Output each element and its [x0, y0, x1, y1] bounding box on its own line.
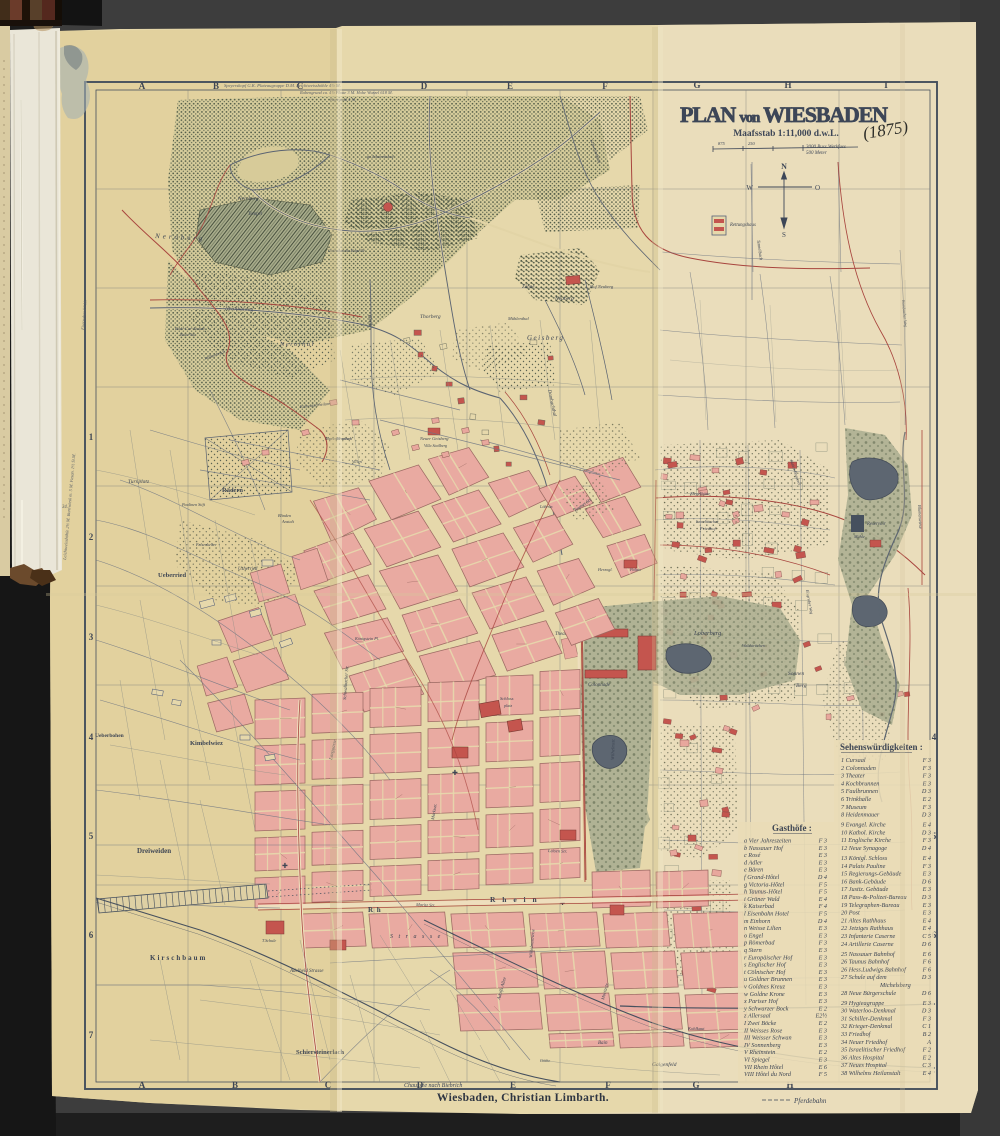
- svg-text:Friedhof: Friedhof: [699, 526, 716, 531]
- svg-text:34 Neuer Friedhof: 34 Neuer Friedhof: [840, 1039, 888, 1046]
- svg-text:F: F: [602, 81, 608, 91]
- svg-text:F 3: F 3: [922, 863, 931, 870]
- svg-text:Rädern: Rädern: [222, 487, 243, 494]
- svg-text:r Europäischer Hof: r Europäischer Hof: [744, 954, 794, 961]
- svg-text:Tempel: Tempel: [248, 212, 263, 217]
- svg-text:19 Telegraphen-Bureau: 19 Telegraphen-Bureau: [841, 902, 900, 909]
- svg-text:14 Palais Pauline: 14 Palais Pauline: [841, 863, 886, 870]
- svg-text:Geisberg: Geisberg: [527, 334, 564, 342]
- svg-text:E 3: E 3: [818, 984, 827, 991]
- svg-text:24 Artillerie Caserne: 24 Artillerie Caserne: [841, 941, 894, 948]
- svg-text:17 Justiz. Gebäude: 17 Justiz. Gebäude: [841, 886, 889, 893]
- svg-text:Michelsberg: Michelsberg: [879, 982, 911, 989]
- svg-text:E 2: E 2: [818, 1005, 827, 1012]
- svg-text:F 5: F 5: [818, 911, 827, 918]
- svg-text:28 Neue Bürgerschule: 28 Neue Bürgerschule: [841, 990, 896, 997]
- svg-text:6 Trinkhalle: 6 Trinkhalle: [841, 796, 871, 803]
- svg-text:VI Spiegel: VI Spiegel: [744, 1057, 770, 1064]
- svg-text:Kimbelwiez: Kimbelwiez: [190, 740, 223, 747]
- svg-text:h Taunus-Hôtel: h Taunus-Hôtel: [744, 889, 782, 896]
- svg-text:E: E: [510, 1080, 516, 1090]
- svg-text:Villa Stailberg: Villa Stailberg: [424, 443, 447, 448]
- svg-text:F 3: F 3: [922, 804, 931, 811]
- svg-text:E 2: E 2: [922, 796, 931, 803]
- svg-text:F 5: F 5: [818, 1071, 827, 1078]
- svg-text:R h: R h: [368, 906, 382, 914]
- svg-text:36 Altes Hospital: 36 Altes Hospital: [840, 1054, 884, 1061]
- svg-text:E 3: E 3: [818, 1042, 827, 1049]
- svg-text:B: B: [213, 81, 219, 91]
- svg-text:VII Rhein Hôtel: VII Rhein Hôtel: [744, 1064, 783, 1071]
- svg-text:6: 6: [89, 930, 94, 940]
- svg-text:l Eisenbahn Hotel: l Eisenbahn Hotel: [744, 911, 789, 918]
- svg-text:Neroberg: Neroberg: [237, 196, 259, 202]
- svg-text:Ueberried: Ueberried: [158, 572, 187, 579]
- svg-text:Beau-Site: Beau-Site: [180, 332, 196, 337]
- svg-text:5: 5: [89, 831, 94, 841]
- svg-text:d Adler: d Adler: [744, 859, 763, 866]
- svg-text:37 Neues Hospital: 37 Neues Hospital: [840, 1062, 887, 1069]
- svg-text:8 Heidenmauer: 8 Heidenmauer: [841, 812, 880, 819]
- svg-text:3 Theater: 3 Theater: [840, 773, 865, 780]
- svg-text:G: G: [693, 80, 700, 90]
- svg-text:7: 7: [89, 1030, 94, 1040]
- svg-text:18 Pass-&-Polizei-Bureau: 18 Pass-&-Polizei-Bureau: [841, 894, 907, 901]
- svg-text:Moritz Str.: Moritz Str.: [415, 902, 435, 908]
- svg-text:Bade-Cur-Anstalt: Bade-Cur-Anstalt: [175, 326, 206, 331]
- svg-text:Maafsstab 1:11,000 d.w.L.: Maafsstab 1:11,000 d.w.L.: [733, 129, 839, 139]
- svg-text:10 Kathol. Kirche: 10 Kathol. Kirche: [841, 829, 886, 836]
- svg-text:B 2: B 2: [923, 1031, 931, 1038]
- svg-text:VIII Hôtel du Nord: VIII Hôtel du Nord: [744, 1071, 792, 1078]
- svg-text:4 Kochbrunnen: 4 Kochbrunnen: [841, 780, 879, 787]
- svg-text:F 3: F 3: [922, 757, 931, 764]
- svg-text:Mühlenthal: Mühlenthal: [507, 316, 529, 321]
- svg-text:875: 875: [718, 141, 726, 146]
- svg-text:k Kaiserbad: k Kaiserbad: [744, 903, 775, 910]
- svg-text:p Römerbad: p Römerbad: [743, 940, 775, 947]
- svg-text:E 3: E 3: [818, 1057, 827, 1064]
- svg-text:D: D: [421, 81, 428, 91]
- svg-text:q Stern: q Stern: [744, 947, 762, 954]
- svg-text:E 4: E 4: [922, 855, 931, 862]
- svg-text:Paulinen Stift: Paulinen Stift: [181, 502, 206, 507]
- svg-text:C 5: C 5: [922, 933, 931, 940]
- svg-text:27 Schule auf dem: 27 Schule auf dem: [841, 974, 887, 981]
- svg-text:Anstalt: Anstalt: [281, 519, 295, 524]
- svg-text:H: H: [784, 80, 791, 90]
- svg-text:16 Bank-Gebäude: 16 Bank-Gebäude: [841, 878, 886, 885]
- svg-text:b Nassauer Hof: b Nassauer Hof: [744, 845, 784, 852]
- svg-text:Wiesbaden, Christian Limbarth.: Wiesbaden, Christian Limbarth.: [437, 1092, 609, 1104]
- svg-text:E 4: E 4: [922, 1070, 931, 1077]
- svg-text:Sehenswürdigkeiten :: Sehenswürdigkeiten :: [840, 742, 923, 752]
- svg-text:E 2: E 2: [818, 1049, 827, 1056]
- svg-text:I: I: [884, 80, 888, 90]
- svg-text:Gasthöfe :: Gasthöfe :: [772, 823, 812, 833]
- svg-text:W: W: [746, 184, 753, 192]
- svg-text:E2½: E2½: [814, 1013, 827, 1020]
- svg-text:PLAN von WIESBADEN: PLAN von WIESBADEN: [680, 102, 890, 127]
- svg-text:B: B: [232, 1080, 238, 1090]
- svg-text:Ziegelhütte: Ziegelhütte: [690, 491, 710, 496]
- svg-text:I Zwei Böcke: I Zwei Böcke: [743, 1020, 777, 1027]
- svg-text:s Englischer Hof: s Englischer Hof: [744, 962, 787, 969]
- svg-text:3000 Russ.Werkfuss: 3000 Russ.Werkfuss: [806, 145, 846, 150]
- svg-text:Rabengrund ca. 4½ Platte 3 M.: Rabengrund ca. 4½ Platte 3 M. Hohe Wurze…: [299, 90, 393, 95]
- svg-text:Speyerskopf G.K. Plateaugruppe: Speyerskopf G.K. Plateaugruppe D.M. Leic…: [224, 83, 341, 88]
- svg-text:E 3: E 3: [818, 845, 827, 852]
- svg-text:Königstein Pl.: Königstein Pl.: [354, 636, 379, 641]
- svg-text:Neuer Geisberg: Neuer Geisberg: [419, 436, 449, 441]
- svg-text:E 3: E 3: [922, 871, 931, 878]
- svg-text:E 3: E 3: [922, 780, 931, 787]
- svg-text:F 5: F 5: [818, 889, 827, 896]
- svg-text:IV Sonnenberg: IV Sonnenberg: [743, 1042, 781, 1049]
- svg-text:n Weisse Lilien: n Weisse Lilien: [744, 925, 781, 932]
- svg-text:Nerothal: Nerothal: [279, 341, 315, 348]
- svg-text:A: A: [139, 81, 146, 91]
- svg-text:D 4: D 4: [817, 874, 827, 881]
- svg-text:u Goldner Brunnen: u Goldner Brunnen: [744, 976, 792, 983]
- svg-text:E 3: E 3: [922, 910, 931, 917]
- svg-text:Kirschbaum: Kirschbaum: [150, 954, 207, 962]
- svg-text:E 3: E 3: [818, 1035, 827, 1042]
- svg-text:F 3: F 3: [818, 940, 827, 947]
- svg-text:E 3: E 3: [818, 1027, 827, 1034]
- svg-text:E 3: E 3: [818, 962, 827, 969]
- svg-text:g Victoria-Hôtel: g Victoria-Hôtel: [744, 881, 785, 888]
- svg-text:F 2: F 2: [922, 1047, 931, 1054]
- svg-text:Thorberg: Thorberg: [420, 314, 441, 320]
- svg-text:E 3: E 3: [922, 1000, 931, 1007]
- svg-text:Sonnen: Sonnen: [788, 671, 804, 677]
- svg-text:Löhrstr.: Löhrstr.: [539, 504, 553, 509]
- svg-text:✚: ✚: [282, 862, 288, 870]
- svg-text:D 6: D 6: [921, 941, 932, 948]
- svg-text:D 3: D 3: [921, 1008, 931, 1015]
- svg-text:Usherried: Usherried: [238, 567, 258, 572]
- svg-text:13 Königl. Schloss: 13 Königl. Schloss: [841, 855, 888, 862]
- svg-text:F 3: F 3: [818, 838, 827, 845]
- svg-text:N: N: [781, 162, 787, 171]
- svg-text:26 Hess.Ludwigs.Bahnhof: 26 Hess.Ludwigs.Bahnhof: [841, 966, 907, 973]
- svg-text:V Rheinstein: V Rheinstein: [744, 1049, 775, 1056]
- svg-text:7 Museum: 7 Museum: [841, 804, 867, 811]
- svg-text:Wilhelmstr.: Wilhelmstr.: [611, 738, 617, 760]
- svg-text:E 4: E 4: [922, 917, 931, 924]
- svg-text:E 6: E 6: [922, 951, 932, 958]
- svg-text:D 6: D 6: [921, 990, 932, 997]
- svg-text:Zähne: Zähne: [522, 285, 535, 290]
- svg-text:G: G: [692, 1080, 699, 1090]
- svg-text:E 3: E 3: [818, 976, 827, 983]
- svg-text:15 Regierungs-Gebäude: 15 Regierungs-Gebäude: [841, 871, 902, 878]
- svg-text:Villen: Villen: [352, 459, 362, 464]
- svg-text:D 3: D 3: [921, 894, 931, 901]
- svg-text:F 4: F 4: [818, 903, 827, 910]
- svg-text:E 6: E 6: [818, 1064, 828, 1071]
- svg-text:Pferdebahn: Pferdebahn: [793, 1097, 827, 1105]
- svg-text:F: F: [605, 1080, 611, 1090]
- svg-text:w Goldne Krone: w Goldne Krone: [744, 991, 785, 998]
- svg-text:E: E: [507, 81, 513, 91]
- svg-text:E 3: E 3: [922, 902, 931, 909]
- svg-text:C 3: C 3: [922, 1062, 931, 1069]
- svg-text:30 Waterloo-Denkmal: 30 Waterloo-Denkmal: [840, 1008, 896, 1015]
- svg-text:Berg: Berg: [796, 683, 807, 689]
- svg-text:A: A: [139, 1080, 146, 1090]
- svg-text:y Schwarzer Bock: y Schwarzer Bock: [743, 1005, 789, 1012]
- svg-text:F 3: F 3: [922, 765, 931, 772]
- svg-text:O: O: [815, 184, 820, 192]
- svg-text:Neuberg: Neuberg: [554, 296, 574, 302]
- svg-text:c Rosé: c Rosé: [744, 852, 761, 859]
- svg-text:D 4: D 4: [921, 845, 931, 852]
- svg-text:E 3: E 3: [818, 998, 827, 1005]
- svg-text:t Cölnischer Hof: t Cölnischer Hof: [744, 969, 787, 976]
- svg-text:35 Israelitischer Friedhof: 35 Israelitischer Friedhof: [840, 1047, 906, 1054]
- svg-text:D 4: D 4: [817, 918, 827, 925]
- svg-text:31 Schiller-Denkmal: 31 Schiller-Denkmal: [840, 1015, 893, 1022]
- svg-text:gr.Johannishof: gr.Johannishof: [367, 154, 394, 159]
- svg-text:E 3: E 3: [818, 991, 827, 998]
- svg-text:Turnplatz: Turnplatz: [128, 479, 150, 485]
- svg-text:Ueberbohen: Ueberbohen: [95, 733, 124, 739]
- svg-text:Waldsträchen: Waldsträchen: [742, 643, 765, 648]
- svg-text:11 Englische Kirche: 11 Englische Kirche: [841, 837, 891, 844]
- svg-text:1 Cursaal: 1 Cursaal: [841, 757, 866, 764]
- svg-text:2: 2: [89, 532, 94, 542]
- svg-text:Reservoir: Reservoir: [866, 522, 886, 527]
- svg-text:v Goldnes Kreuz: v Goldnes Kreuz: [744, 984, 786, 991]
- svg-text:500 Meter: 500 Meter: [806, 151, 827, 156]
- svg-text:S t r a s s e: S t r a s s e: [390, 934, 442, 940]
- svg-text:E 3: E 3: [818, 852, 827, 859]
- svg-text:A: A: [926, 1039, 931, 1046]
- svg-text:Herzogl.: Herzogl.: [597, 567, 613, 572]
- svg-text:E 3: E 3: [818, 925, 827, 932]
- svg-text:E 3: E 3: [818, 947, 827, 954]
- svg-text:Israelitischer: Israelitischer: [695, 519, 719, 524]
- svg-text:✚: ✚: [452, 769, 458, 777]
- svg-text:Hof Neuberg: Hof Neuberg: [589, 284, 614, 289]
- svg-text:F 6: F 6: [922, 959, 932, 966]
- svg-text:9 Evangel. Kirche: 9 Evangel. Kirche: [841, 822, 886, 829]
- svg-text:250: 250: [748, 141, 756, 146]
- svg-text:Colonnade: Colonnade: [588, 683, 611, 688]
- svg-text:III Weisser Schwan: III Weisser Schwan: [743, 1035, 792, 1042]
- svg-text:F 3: F 3: [922, 773, 931, 780]
- svg-text:E 3: E 3: [818, 859, 827, 866]
- svg-text:26 Taunus Bahnhof: 26 Taunus Bahnhof: [841, 959, 890, 966]
- svg-text:R h e i n: R h e i n: [490, 895, 539, 904]
- svg-text:z Allersaal: z Allersaal: [743, 1013, 771, 1020]
- svg-text:E 3: E 3: [818, 954, 827, 961]
- svg-text:i Grüner Wald: i Grüner Wald: [744, 896, 780, 903]
- svg-text:23 Infanterie Caserne: 23 Infanterie Caserne: [841, 933, 896, 940]
- svg-text:Adelheid Strasse: Adelheid Strasse: [289, 969, 324, 974]
- svg-text:E 3: E 3: [818, 932, 827, 939]
- svg-text:2 Colonnaden: 2 Colonnaden: [841, 765, 876, 772]
- svg-text:Felsenkeller: Felsenkeller: [195, 542, 217, 547]
- svg-text:Bain: Bain: [598, 1041, 608, 1046]
- svg-text:34.: 34.: [62, 505, 68, 510]
- svg-text:20 Post: 20 Post: [841, 910, 860, 917]
- svg-text:29 Hygieagruppe: 29 Hygieagruppe: [841, 1000, 884, 1007]
- svg-text:Dreiweiden: Dreiweiden: [137, 847, 171, 855]
- svg-text:33 Friedhof: 33 Friedhof: [840, 1031, 872, 1038]
- svg-text:Blinden: Blinden: [278, 513, 291, 518]
- svg-text:S: S: [782, 231, 786, 239]
- svg-text:Nerothalweg: Nerothalweg: [224, 306, 254, 313]
- svg-text:E 2: E 2: [818, 1020, 827, 1027]
- svg-text:22 Jetziges Rathhaus: 22 Jetziges Rathhaus: [841, 925, 894, 932]
- svg-text:21 Altes Rathhaus: 21 Altes Rathhaus: [841, 917, 887, 924]
- svg-text:e Bären: e Bären: [744, 867, 763, 874]
- svg-text:F 3: F 3: [922, 1015, 931, 1022]
- svg-text:Loberberg: Loberberg: [693, 630, 722, 637]
- svg-text:o Engel: o Engel: [744, 932, 763, 939]
- svg-text:D 3: D 3: [921, 788, 931, 795]
- svg-text:E 2: E 2: [922, 1054, 931, 1061]
- svg-text:E 4: E 4: [818, 896, 827, 903]
- svg-text:E 3: E 3: [922, 886, 931, 893]
- svg-text:F 5: F 5: [818, 881, 827, 888]
- svg-text:Chaussée nach Biebrich: Chaussée nach Biebrich: [404, 1083, 462, 1089]
- svg-text:12 Neue Synagoge: 12 Neue Synagoge: [841, 845, 887, 852]
- svg-text:Schloss: Schloss: [500, 696, 514, 701]
- svg-text:II Weisses Rose: II Weisses Rose: [743, 1027, 783, 1034]
- svg-text:Kohlkaut: Kohlkaut: [687, 1026, 705, 1031]
- svg-text:Luisen Str.: Luisen Str.: [547, 848, 567, 854]
- svg-text:C 1: C 1: [922, 1023, 931, 1030]
- svg-text:a Vier Jahreszeiten: a Vier Jahreszeiten: [744, 838, 791, 845]
- svg-text:5 Faulbrunnen: 5 Faulbrunnen: [841, 788, 878, 795]
- svg-text:f Grand-Hôtel: f Grand-Hôtel: [744, 874, 780, 881]
- svg-text:D 6: D 6: [921, 878, 932, 885]
- svg-text:F 6: F 6: [922, 966, 932, 973]
- svg-text:F 3: F 3: [922, 837, 931, 844]
- svg-text:E 4: E 4: [922, 822, 931, 829]
- svg-text:25 Nassauer Bahnhof: 25 Nassauer Bahnhof: [841, 951, 896, 958]
- svg-text:32 Krieger-Denkmal: 32 Krieger-Denkmal: [840, 1023, 893, 1030]
- svg-text:x Pariser Hof: x Pariser Hof: [743, 998, 779, 1005]
- svg-text:Grub: Grub: [366, 315, 373, 327]
- svg-text:D 3: D 3: [921, 974, 931, 981]
- svg-text:E 3: E 3: [818, 969, 827, 976]
- svg-text:1: 1: [89, 432, 94, 442]
- svg-text:E 4: E 4: [922, 925, 931, 932]
- svg-text:D 3: D 3: [921, 812, 931, 819]
- svg-text:E 3: E 3: [818, 867, 827, 874]
- svg-text:m Einhorn: m Einhorn: [744, 918, 770, 925]
- svg-text:Mühle: Mühle: [853, 534, 865, 539]
- svg-text:platz: platz: [503, 703, 513, 708]
- svg-text:38 Wilhelms Heilanstalt: 38 Wilhelms Heilanstalt: [840, 1070, 901, 1077]
- svg-text:D 3: D 3: [921, 829, 931, 836]
- svg-text:T.Schule: T.Schule: [262, 938, 276, 943]
- svg-text:4: 4: [89, 732, 94, 742]
- svg-text:3: 3: [89, 632, 94, 642]
